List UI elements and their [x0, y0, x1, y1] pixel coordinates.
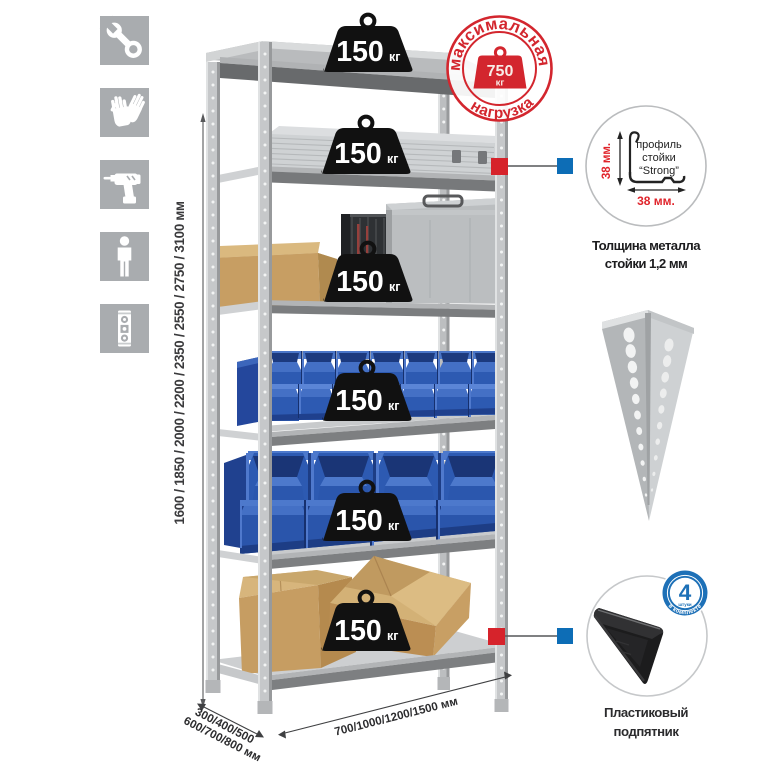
svg-text:кг: кг: [389, 280, 400, 294]
svg-text:“Strong”: “Strong”: [639, 165, 679, 177]
svg-text:700/1000/1200/1500 мм: 700/1000/1200/1500 мм: [333, 695, 459, 739]
svg-text:150: 150: [334, 138, 382, 170]
svg-text:Пластиковый: Пластиковый: [604, 705, 688, 720]
svg-text:кг: кг: [389, 50, 400, 64]
svg-text:профиль: профиль: [636, 139, 682, 151]
svg-text:стойки: стойки: [642, 152, 676, 164]
svg-text:1600 / 1850 / 2000 / 2200 / 23: 1600 / 1850 / 2000 / 2200 / 2350 / 2550 …: [172, 201, 187, 524]
svg-text:кг: кг: [496, 78, 505, 89]
svg-text:150: 150: [336, 36, 384, 68]
svg-text:кг: кг: [388, 519, 399, 533]
svg-text:штуки: штуки: [678, 602, 692, 607]
svg-text:38 мм.: 38 мм.: [601, 143, 613, 179]
svg-text:Толщина металла: Толщина металла: [592, 238, 701, 253]
svg-text:стойки 1,2 мм: стойки 1,2 мм: [605, 256, 688, 271]
svg-text:150: 150: [336, 266, 384, 298]
svg-text:150: 150: [335, 505, 383, 537]
svg-text:кг: кг: [387, 152, 398, 166]
svg-text:150: 150: [334, 615, 382, 647]
svg-text:150: 150: [335, 385, 383, 417]
svg-text:подпятник: подпятник: [614, 724, 680, 739]
svg-text:кг: кг: [387, 629, 398, 643]
svg-text:кг: кг: [388, 399, 399, 413]
svg-text:38 мм.: 38 мм.: [637, 194, 675, 208]
